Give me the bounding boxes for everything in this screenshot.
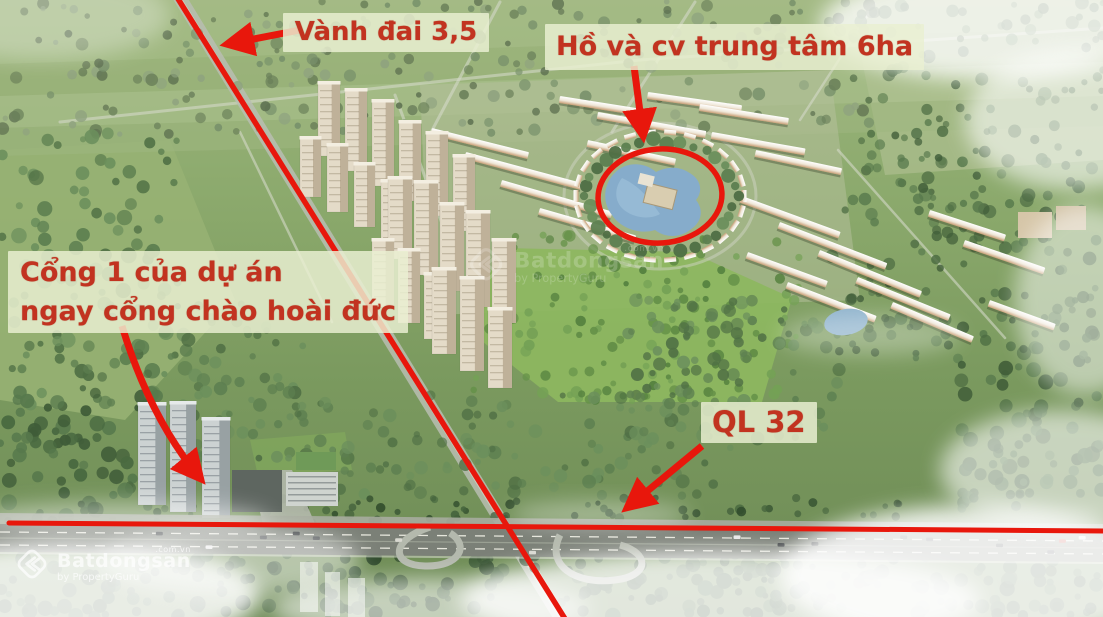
scene-shape [429, 183, 438, 275]
scene-shape [615, 391, 628, 404]
scene-shape [755, 586, 766, 597]
scene-shape [32, 513, 43, 524]
scene-shape [942, 227, 954, 239]
scene-shape [428, 154, 440, 155]
scene-shape [683, 252, 696, 260]
scene-shape [134, 225, 142, 233]
scene-shape [76, 228, 90, 242]
scene-shape [0, 0, 170, 60]
scene-shape [528, 549, 540, 561]
scene-shape [428, 189, 440, 190]
scene-shape [863, 0, 875, 11]
scene-shape [329, 180, 341, 181]
scene-shape [867, 130, 875, 138]
scene-shape [605, 464, 615, 474]
scene-shape [172, 480, 186, 481]
scene-shape [70, 5, 78, 13]
scene-shape [772, 385, 782, 395]
scene-shape [103, 105, 109, 111]
scene-shape [302, 152, 314, 153]
scene-shape [369, 606, 383, 617]
scene-shape [320, 146, 332, 147]
scene-shape [170, 404, 196, 512]
scene-shape [1010, 240, 1022, 252]
scene-shape [390, 213, 403, 214]
scene-shape [332, 84, 340, 156]
scene-shape [79, 461, 88, 470]
scene-shape [556, 598, 565, 607]
scene-shape [399, 120, 422, 124]
scene-shape [957, 321, 969, 333]
scene-shape [689, 143, 697, 151]
scene-shape [329, 201, 341, 202]
scene-shape [944, 341, 953, 350]
scene-shape [681, 385, 692, 396]
scene-shape [789, 295, 799, 305]
scene-shape [664, 256, 676, 262]
scene-shape [643, 363, 650, 370]
scene-shape [1092, 285, 1099, 292]
scene-shape [1063, 248, 1072, 257]
scene-shape [737, 174, 745, 187]
scene-shape [970, 191, 979, 200]
scene-shape [372, 102, 394, 186]
scene-shape [978, 185, 986, 193]
scene-shape [204, 468, 219, 469]
scene-shape [742, 355, 750, 363]
scene-shape [12, 432, 22, 442]
scene-shape [47, 91, 54, 98]
scene-shape [172, 473, 186, 474]
scene-shape [574, 190, 579, 202]
scene-shape [477, 551, 490, 564]
scene-shape [304, 444, 310, 450]
scene-shape [55, 354, 65, 364]
scene-shape [857, 104, 869, 116]
scene-shape [685, 77, 694, 86]
scene-shape [82, 61, 90, 69]
scene-shape [355, 120, 363, 128]
scene-shape [1074, 184, 1083, 193]
scene-shape [204, 496, 219, 497]
scene-shape [575, 558, 586, 569]
scene-shape [1022, 188, 1036, 202]
scene-shape [790, 585, 804, 599]
scene-shape [734, 384, 743, 393]
scene-shape [383, 223, 395, 224]
scene-shape [746, 252, 828, 288]
scene-shape [1015, 205, 1103, 395]
scene-shape [857, 559, 866, 568]
scene-shape [653, 358, 666, 371]
scene-shape [723, 556, 730, 563]
scene-shape [390, 227, 403, 228]
scene-shape [841, 0, 850, 7]
scene-shape [1020, 478, 1028, 486]
scene-shape [731, 318, 744, 331]
scene-shape [479, 560, 494, 575]
scene-shape [75, 110, 87, 122]
scene-shape [910, 240, 919, 249]
scene-shape [1066, 16, 1079, 29]
scene-shape [580, 180, 593, 193]
scene-shape [867, 150, 877, 160]
scene-shape [37, 0, 49, 10]
scene-shape [256, 126, 262, 132]
scene-shape [684, 326, 694, 336]
scene-shape [1061, 87, 1068, 94]
scene-shape [7, 459, 15, 467]
scene-shape [854, 277, 950, 323]
scene-shape [894, 312, 907, 325]
scene-shape [49, 449, 59, 459]
scene-shape [466, 210, 491, 214]
scene-shape [582, 475, 596, 489]
scene-shape [679, 294, 688, 303]
scene-shape [490, 365, 503, 366]
scene-shape [1052, 304, 1063, 315]
scene-shape [609, 512, 616, 519]
scene-shape [1055, 266, 1064, 275]
scene-shape [92, 433, 101, 442]
scene-shape [958, 46, 969, 57]
scene-shape [502, 512, 510, 520]
scene-shape [127, 592, 140, 605]
scene-shape [700, 559, 707, 566]
scene-shape [455, 226, 467, 227]
scene-shape [1088, 329, 1100, 341]
scene-shape [1002, 459, 1017, 474]
scene-shape [940, 410, 1103, 530]
scene-shape [68, 608, 83, 617]
scene-shape [851, 102, 859, 110]
scene-shape [468, 233, 481, 234]
scene-shape [396, 102, 403, 109]
scene-shape [134, 390, 149, 405]
scene-shape [519, 79, 531, 91]
scene-shape [471, 442, 482, 453]
scene-shape [988, 300, 1056, 331]
scene-shape [751, 394, 758, 401]
scene-shape [475, 459, 481, 465]
scene-shape [202, 417, 231, 421]
scene-shape [1022, 433, 1031, 442]
scene-shape [347, 470, 354, 477]
scene-shape [960, 260, 967, 267]
scene-shape [1083, 608, 1091, 616]
scene-shape [30, 437, 42, 449]
scene-shape [1077, 291, 1089, 303]
scene-shape [0, 599, 12, 613]
scene-shape [22, 608, 28, 614]
scene-shape [468, 317, 477, 326]
scene-shape [528, 124, 540, 136]
scene-shape [416, 203, 429, 204]
scene-shape [734, 535, 741, 539]
scene-shape [697, 250, 706, 259]
scene-shape [380, 59, 389, 68]
scene-shape [727, 444, 734, 451]
scene-shape [314, 57, 321, 64]
scene-shape [574, 174, 582, 187]
scene-shape [454, 515, 461, 522]
scene-shape [675, 421, 686, 432]
scene-shape [390, 199, 403, 200]
scene-shape [659, 137, 674, 152]
scene-shape [969, 242, 979, 252]
scene-shape [357, 585, 367, 595]
scene-shape [1086, 308, 1096, 318]
scene-shape [311, 459, 320, 468]
scene-shape [68, 459, 78, 469]
scene-shape [204, 447, 219, 448]
scene-shape [981, 34, 988, 41]
scene-shape [16, 408, 25, 417]
scene-shape [298, 103, 309, 114]
scene-shape [299, 448, 313, 462]
scene-shape [464, 65, 474, 75]
scene-shape [795, 254, 802, 261]
scene-shape [133, 349, 144, 360]
scene-shape [635, 494, 644, 503]
scene-shape [140, 432, 155, 433]
scene-shape [595, 475, 603, 483]
scene-shape [442, 464, 452, 474]
scene-shape [356, 206, 368, 207]
scene-shape [1028, 408, 1042, 422]
scene-shape [988, 125, 997, 134]
scene-shape [773, 337, 786, 350]
scene-shape [699, 104, 789, 127]
scene-shape [649, 381, 658, 390]
scene-shape [57, 476, 66, 485]
scene-shape [903, 548, 912, 557]
scene-shape [701, 244, 714, 254]
scene-shape [442, 232, 455, 233]
scene-shape [585, 502, 591, 508]
scene-shape [664, 256, 676, 262]
scene-shape [524, 340, 535, 351]
scene-shape [235, 595, 250, 610]
scene-shape [1029, 341, 1042, 354]
scene-shape [116, 449, 130, 463]
scene-shape [717, 148, 729, 160]
lake-circle-marker [595, 145, 725, 247]
scene-shape [83, 369, 95, 381]
scene-shape [253, 398, 267, 412]
scene-shape [852, 346, 860, 354]
scene-shape [83, 364, 93, 374]
scene-shape [390, 241, 403, 242]
scene-shape [216, 586, 227, 597]
scene-shape [104, 212, 116, 224]
scene-shape [172, 459, 186, 460]
scene-shape [79, 438, 90, 449]
scene-shape [681, 381, 689, 389]
scene-shape [221, 425, 235, 439]
scene-shape [195, 113, 206, 124]
scene-shape [473, 375, 479, 381]
scene-shape [344, 509, 354, 519]
scene-shape [1071, 401, 1081, 411]
scene-shape [183, 41, 190, 48]
scene-shape [426, 281, 438, 282]
scene-shape [969, 493, 978, 502]
scene-shape [790, 369, 797, 376]
scene-shape [517, 6, 526, 15]
scene-shape [287, 413, 294, 420]
scene-shape [289, 580, 300, 591]
scene-shape [266, 73, 272, 79]
scene-shape [598, 319, 605, 326]
scene-shape [1, 415, 15, 429]
scene-shape [76, 38, 89, 51]
scene-shape [641, 392, 649, 400]
scene-shape [383, 216, 395, 217]
scene-shape [262, 599, 276, 613]
scene-shape [1019, 237, 1028, 246]
scene-shape [697, 598, 704, 605]
scene-shape [832, 363, 845, 376]
scene-shape [959, 463, 972, 476]
scene-shape [462, 341, 475, 342]
scene-shape [131, 339, 145, 353]
scene-shape [858, 137, 865, 144]
scene-shape [426, 302, 438, 303]
scene-shape [793, 334, 798, 339]
scene-shape [453, 157, 475, 231]
scene-shape [376, 465, 384, 473]
scene-shape [288, 476, 336, 478]
scene-shape [363, 113, 368, 118]
scene-shape [669, 468, 682, 481]
scene-shape [816, 256, 919, 299]
scene-shape [131, 238, 143, 250]
scene-shape [795, 284, 801, 290]
scene-shape [1018, 77, 1028, 87]
scene-shape [37, 388, 47, 398]
scene-shape [390, 234, 403, 235]
scene-shape [683, 132, 696, 140]
scene-shape [416, 259, 429, 260]
scene-shape [889, 302, 974, 345]
scene-shape [168, 74, 179, 85]
scene-shape [401, 129, 413, 130]
scene-shape [1030, 135, 1039, 144]
scene-shape [695, 297, 700, 302]
scene-shape [932, 225, 941, 234]
scene-shape [430, 495, 436, 501]
scene-shape [962, 491, 975, 504]
scene-shape [186, 49, 194, 57]
scene-shape [678, 288, 684, 294]
scene-shape [987, 307, 1054, 333]
scene-shape [329, 446, 335, 452]
scene-shape [1050, 598, 1065, 613]
scene-shape [749, 349, 758, 358]
scene-shape [397, 599, 406, 608]
scene-shape [155, 405, 166, 505]
scene-shape [414, 431, 420, 437]
scene-shape [528, 20, 537, 29]
scene-shape [1075, 149, 1082, 156]
scene-shape [624, 132, 637, 140]
scene-shape [1034, 575, 1047, 588]
scene-shape [865, 97, 872, 104]
scene-shape [54, 141, 62, 149]
scene-shape [729, 160, 740, 173]
scene-shape [462, 306, 475, 307]
scene-shape [221, 422, 231, 432]
scene-shape [712, 361, 719, 368]
scene-shape [180, 344, 193, 357]
scene-shape [621, 142, 631, 152]
scene-shape [643, 183, 677, 210]
scene-shape [938, 157, 946, 165]
scene-shape [467, 157, 475, 231]
scene-shape [571, 386, 583, 398]
scene-shape [26, 430, 39, 443]
scene-shape [245, 574, 255, 584]
scene-shape [666, 337, 679, 350]
scene-shape [109, 491, 117, 499]
scene-shape [490, 372, 503, 373]
scene-shape [960, 200, 967, 207]
scene-shape [301, 593, 308, 600]
scene-shape [359, 488, 370, 499]
scene-shape [951, 80, 960, 89]
scene-shape [383, 195, 395, 196]
scene-shape [780, 320, 786, 326]
scene-shape [697, 605, 710, 617]
scene-shape [386, 102, 394, 186]
scene-shape [733, 253, 740, 260]
scene-shape [556, 535, 642, 581]
scene-shape [349, 566, 361, 578]
scene-shape [644, 296, 653, 305]
scene-shape [426, 515, 433, 522]
scene-shape [488, 446, 502, 460]
scene-shape [996, 311, 1007, 322]
scene-shape [734, 191, 745, 202]
scene-shape [6, 591, 13, 598]
scene-shape [356, 178, 368, 179]
scene-shape [335, 484, 346, 495]
scene-shape [372, 238, 395, 242]
scene-shape [574, 205, 582, 218]
scene-shape [154, 215, 163, 224]
scene-shape [479, 232, 487, 240]
scene-shape [943, 121, 950, 128]
scene-shape [237, 558, 246, 567]
scene-shape [217, 567, 226, 576]
scene-shape [999, 241, 1012, 254]
scene-shape [52, 427, 60, 435]
scene-shape [473, 411, 481, 419]
scene-shape [271, 451, 283, 463]
scene-shape [468, 119, 474, 125]
scene-shape [797, 581, 810, 594]
scene-shape [462, 362, 475, 363]
scene-shape [1006, 490, 1015, 499]
scene-shape [428, 175, 440, 176]
scene-shape [492, 567, 500, 575]
scene-shape [341, 451, 354, 464]
scene-shape [1000, 457, 1008, 465]
scene-shape [863, 569, 878, 584]
scene-shape [953, 354, 963, 364]
scene-shape [426, 134, 448, 216]
